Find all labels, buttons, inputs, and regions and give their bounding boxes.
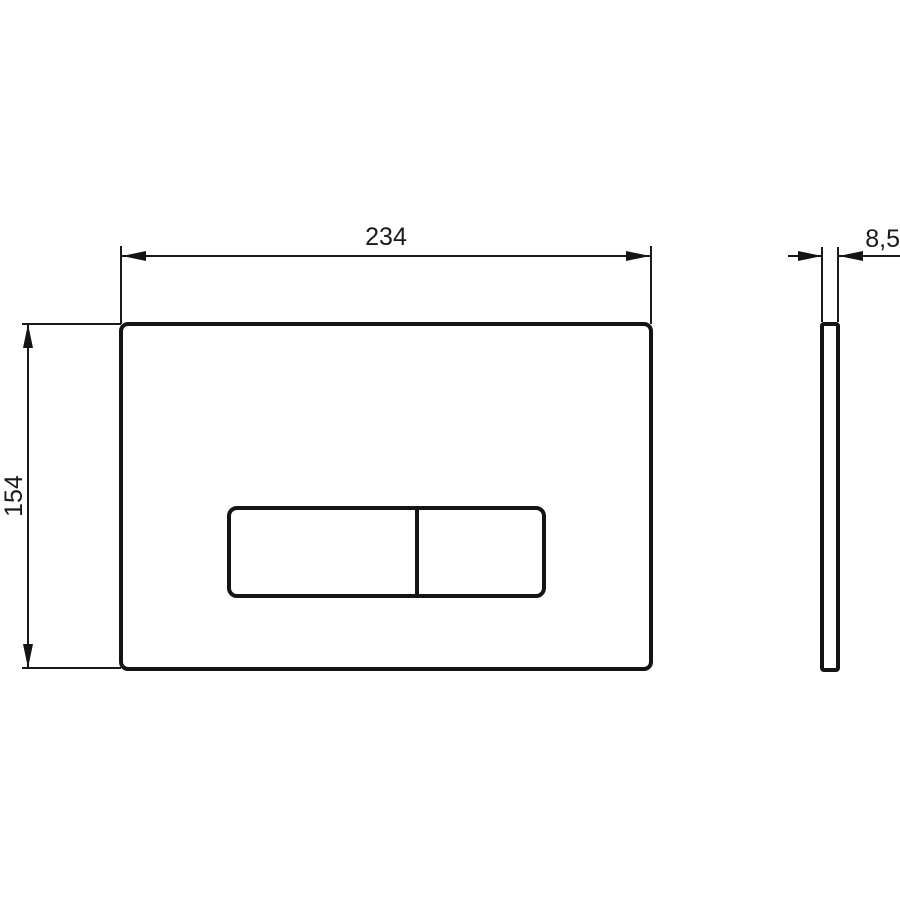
height-dim-label: 154 [1, 446, 27, 546]
depth-dim-arrow-right-icon [839, 251, 863, 261]
small-flush-button [419, 510, 542, 594]
width-dim-arrow-right-icon [626, 251, 650, 261]
depth-dim-arrow-left-icon [798, 251, 822, 261]
width-dim-line [122, 255, 650, 257]
depth-dim-label: 8,5 [838, 226, 900, 252]
height-dim-arrow-top-icon [23, 324, 33, 348]
width-dim-extension-line-right [650, 246, 652, 324]
height-dim-extension-line-top [22, 323, 121, 325]
flush-button-group-outline [227, 506, 546, 598]
large-flush-button [231, 510, 415, 594]
height-dim-arrow-bottom-icon [23, 644, 33, 668]
flush-plate-side-outline [820, 322, 840, 672]
width-dim-label: 234 [121, 224, 651, 250]
height-dim-extension-line-bottom [22, 667, 121, 669]
width-dim-arrow-left-icon [122, 251, 146, 261]
flush-plate-front-outline [119, 322, 653, 671]
technical-drawing-canvas: 234 154 8,5 [0, 0, 900, 900]
